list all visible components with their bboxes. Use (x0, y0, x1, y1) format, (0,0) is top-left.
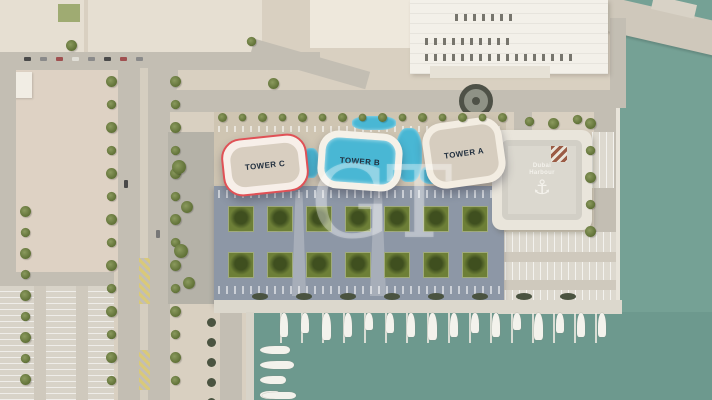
tree (20, 290, 31, 301)
tree (106, 352, 117, 363)
tree (525, 117, 534, 126)
roundabout-center (472, 97, 480, 105)
planter (252, 293, 268, 300)
parking-aisle (498, 252, 616, 262)
planter (340, 293, 356, 300)
site-plan-canvas: Dubai Harbour ⚓ TOWER C TOWER B TOWER A (0, 0, 712, 400)
parking-aisle (76, 286, 88, 400)
tree (107, 376, 116, 385)
tree (458, 113, 467, 122)
rooftop-logo-line1: Dubai (533, 163, 551, 170)
tree (378, 113, 387, 122)
boat (260, 376, 286, 384)
car (104, 57, 111, 61)
tower-c-footprint: TOWER C (219, 132, 311, 199)
land-field-west (0, 70, 118, 272)
tree (106, 260, 117, 271)
tree (298, 113, 307, 122)
boat (513, 313, 521, 330)
cars-on-north-road (24, 57, 143, 61)
tree (170, 122, 181, 133)
tree (107, 100, 116, 109)
boat (428, 313, 437, 340)
road-marking-hatch (139, 258, 150, 304)
tree (171, 192, 180, 201)
boat (301, 313, 309, 333)
podium-garden-square (228, 252, 254, 278)
tree (573, 115, 582, 124)
boat (492, 313, 500, 337)
tree-column-boulevard-east (170, 76, 181, 386)
tree (399, 114, 407, 122)
car (72, 57, 79, 61)
warehouse-main (410, 0, 608, 74)
podium-garden-square (462, 206, 488, 232)
rooftop-logo-panel: Dubai Harbour ⚓ (502, 140, 582, 220)
land-block-north (88, 0, 262, 52)
boat (322, 313, 331, 340)
road-marina-west (220, 302, 242, 400)
tree (218, 113, 227, 122)
boat (260, 346, 290, 354)
rooftop-vents (425, 54, 575, 61)
watermark: GT (310, 148, 449, 258)
tree (279, 114, 287, 122)
planter (560, 293, 576, 300)
tree-column-boulevard-west (106, 76, 117, 386)
tree (170, 214, 181, 225)
planter (207, 378, 216, 387)
planter (207, 318, 216, 327)
car (24, 57, 31, 61)
tree (439, 114, 447, 122)
tree (21, 354, 30, 363)
boat (534, 313, 543, 340)
tree (21, 228, 30, 237)
rooftop-vents (455, 14, 515, 21)
tree (183, 277, 195, 289)
tree (359, 114, 367, 122)
car (40, 57, 47, 61)
anchor-icon: ⚓ (533, 177, 551, 197)
tree (181, 201, 193, 213)
tree (107, 238, 116, 247)
podium-garden-square (228, 206, 254, 232)
loading-bay (430, 66, 550, 78)
planter (428, 293, 444, 300)
tree (107, 330, 116, 339)
car (124, 180, 128, 188)
tree (107, 146, 116, 155)
tree (171, 146, 180, 155)
tree (171, 376, 180, 385)
tree (106, 168, 117, 179)
lawn-strip (58, 4, 80, 22)
tree-column-east-road (585, 118, 596, 237)
tree (586, 146, 595, 155)
tree (171, 330, 180, 339)
tree (172, 160, 186, 174)
podium-garden-square (267, 206, 293, 232)
tree (319, 114, 327, 122)
tree (21, 312, 30, 321)
tree (548, 118, 559, 129)
tree (170, 352, 181, 363)
tree (21, 270, 30, 279)
parking-lot-west (0, 286, 114, 400)
tree (239, 114, 247, 122)
tree (268, 78, 279, 89)
boat (386, 313, 394, 333)
planter (516, 293, 532, 300)
tree (107, 284, 116, 293)
tree (171, 100, 180, 109)
planter (472, 293, 488, 300)
rooftop-vents (425, 38, 515, 45)
road-east-west (165, 90, 615, 112)
tree (171, 284, 180, 293)
road-marking-hatch (139, 350, 150, 390)
boat (471, 313, 479, 333)
tree (586, 200, 595, 209)
tree (106, 122, 117, 133)
tree (107, 192, 116, 201)
tree (66, 40, 77, 51)
berthed-boats-row (280, 313, 606, 343)
planter (384, 293, 400, 300)
tree (174, 244, 188, 258)
promenade-planters (252, 293, 576, 300)
dubai-harbour-building: Dubai Harbour ⚓ (492, 130, 592, 230)
boat (280, 313, 288, 337)
tree (106, 306, 117, 317)
tree (170, 260, 181, 271)
boat (577, 313, 585, 337)
tree (585, 226, 596, 237)
tree (170, 306, 181, 317)
tree (20, 206, 31, 217)
tree (585, 118, 596, 129)
boat (260, 361, 294, 369)
parking-aisle (498, 280, 616, 290)
tree (106, 214, 117, 225)
boat (262, 392, 296, 399)
car (136, 57, 143, 61)
podium-garden-square (462, 252, 488, 278)
boat (344, 313, 352, 337)
tree (247, 37, 256, 46)
warehouse-west (310, 0, 410, 48)
tree (479, 114, 487, 122)
tree (20, 248, 31, 259)
tree (258, 113, 267, 122)
road-quay-link (610, 18, 626, 108)
planter (207, 338, 216, 347)
planter (207, 358, 216, 367)
boat (365, 313, 373, 330)
car (120, 57, 127, 61)
tree (418, 113, 427, 122)
marina-west-planters (207, 318, 216, 400)
boat (556, 313, 564, 333)
rooftop-stripe-art (551, 146, 567, 162)
car (88, 57, 95, 61)
tree (585, 172, 596, 183)
tree-column-west-edge (20, 206, 31, 385)
podium-garden-square (267, 252, 293, 278)
tree (170, 76, 181, 87)
marina-quay-west (246, 312, 254, 400)
car (56, 57, 63, 61)
tree-row-deck (218, 113, 507, 122)
tree (338, 113, 347, 122)
boat (598, 313, 606, 337)
car (156, 230, 160, 238)
tree (106, 76, 117, 87)
tree (20, 374, 31, 385)
planter (296, 293, 312, 300)
parking-aisle (34, 286, 46, 400)
boat (450, 313, 458, 337)
boat (407, 313, 415, 337)
tree (20, 332, 31, 343)
tree (498, 113, 507, 122)
road-parking-access (0, 272, 114, 286)
